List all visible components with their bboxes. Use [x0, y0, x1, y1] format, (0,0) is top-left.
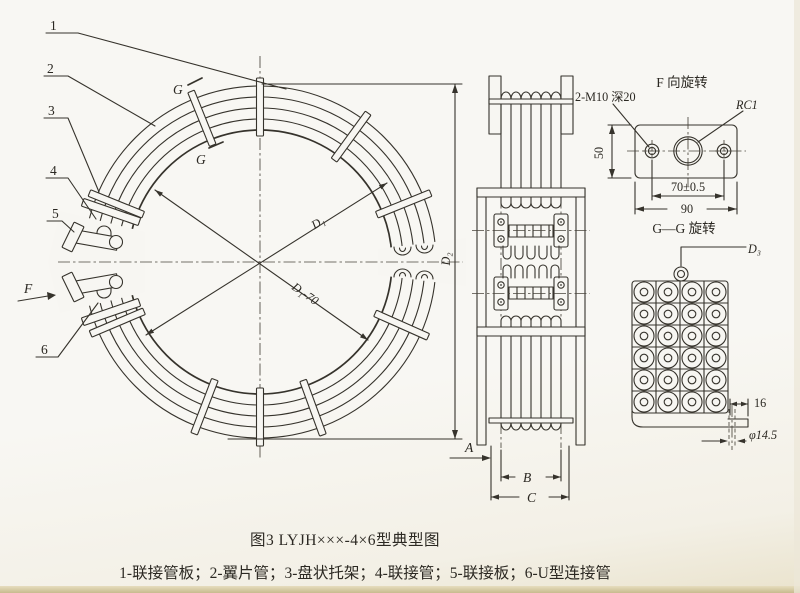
part-label-5: 5 — [52, 206, 59, 221]
support-bracket — [257, 78, 264, 136]
dim-d3-label: D₃ — [747, 242, 761, 256]
dim-hole-dia-label: φ14.5 — [749, 428, 777, 442]
section-g-top-label: G — [173, 82, 183, 97]
bottom-u-bends — [501, 423, 561, 430]
rc1-label: RC1 — [735, 98, 758, 112]
top-tube-plate — [489, 99, 573, 104]
gg-view-title: G—G 旋转 — [652, 221, 715, 236]
dim-50-label: 50 — [592, 147, 606, 159]
connection-plate-face — [635, 125, 737, 178]
part-label-2: 2 — [47, 61, 54, 76]
scan-edge-bottom — [0, 586, 800, 593]
part-label-6: 6 — [41, 342, 48, 357]
diameter-lines: D₁ D₁-70 — [146, 183, 387, 340]
top-fitting — [674, 267, 688, 281]
support-bracket — [376, 190, 432, 218]
section-g-bottom-label: G — [196, 152, 206, 167]
main-ring-view: D₁ D₁-70 — [18, 18, 466, 460]
side-view: A B C — [450, 76, 590, 505]
figure-legend: 1-联接管板；2-翼片管；3-盘状托架；4-联接管；5-联接板；6-U型连接管 — [40, 561, 690, 583]
dim-d1-label: D₁ — [308, 213, 327, 232]
bolted-joint-lower — [472, 265, 590, 336]
gg-rotation-view: G—G 旋转 D₃ 16 φ1 — [632, 221, 777, 450]
tubes-upper — [501, 104, 561, 188]
dim-50: 50 — [592, 125, 631, 178]
connection-tube-plate — [477, 188, 585, 197]
dim-b-label: B — [523, 470, 531, 485]
shell-plate-right — [561, 76, 573, 134]
f-view-title: F 向旋转 — [656, 75, 707, 90]
shell-plate-left — [489, 76, 501, 134]
bolted-joint-upper — [472, 188, 590, 259]
part-label-4: 4 — [50, 163, 57, 178]
thread-note-label: 2-M10 深20 — [575, 90, 636, 104]
view-f-label: F — [23, 281, 33, 296]
view-direction-f: F — [18, 281, 56, 301]
bottom-tube-plate — [489, 418, 573, 423]
support-bracket-gg-section — [188, 90, 216, 146]
dim-a-label: A — [464, 440, 474, 455]
pipe-end-cap — [110, 236, 123, 249]
scan-edge-right — [794, 0, 800, 593]
top-u-bends — [501, 92, 561, 99]
support-bracket — [191, 378, 218, 435]
dim-c-label: C — [527, 490, 537, 505]
dim-90-label: 90 — [681, 202, 693, 216]
support-bracket — [331, 111, 371, 162]
u-connector-tubes — [503, 246, 559, 259]
d3-leader — [681, 247, 746, 266]
dim-70-label: 70±0.5 — [671, 180, 705, 194]
support-bracket — [257, 388, 264, 446]
dim-16-label: 16 — [754, 396, 766, 410]
dim-16: 16 — [730, 396, 766, 416]
dims-abc: A B C — [450, 440, 569, 505]
dim-hole-dia: φ14.5 — [702, 428, 777, 443]
part-label-1: 1 — [50, 18, 57, 33]
f-rotation-view: F 向旋转 2-M10 深20 RC1 50 70±0.5 — [575, 75, 758, 216]
dim-d2-label: D₂ — [439, 252, 453, 266]
part-label-3: 3 — [48, 103, 55, 118]
engineering-drawing: D₁ D₁-70 — [0, 0, 800, 593]
support-bracket — [300, 379, 326, 436]
tubes-lower — [501, 336, 561, 418]
figure-title: 图3 LYJH×××-4×6型典型图 — [120, 528, 570, 550]
